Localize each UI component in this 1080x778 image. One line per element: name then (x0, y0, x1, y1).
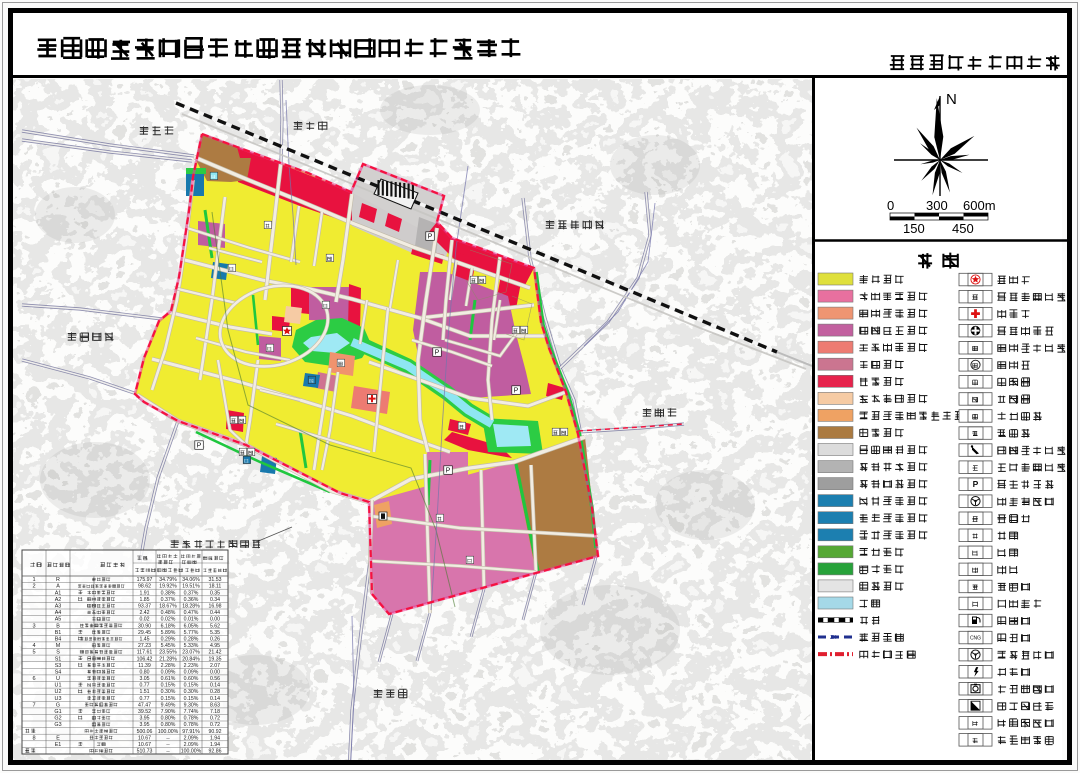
svg-text:18.28%: 18.28% (182, 604, 200, 610)
svg-text:U3: U3 (55, 696, 62, 702)
svg-text:0.15%: 0.15% (184, 696, 199, 702)
svg-text:P: P (514, 388, 519, 395)
svg-text:23.07%: 23.07% (182, 650, 200, 656)
svg-text:18.67%: 18.67% (159, 604, 177, 610)
svg-text:G2: G2 (54, 716, 61, 722)
svg-text:6.18%: 6.18% (161, 623, 176, 629)
svg-text:21.42: 21.42 (209, 650, 222, 656)
svg-text:5: 5 (32, 650, 35, 656)
svg-text:6: 6 (32, 676, 35, 682)
svg-text:B4: B4 (55, 637, 62, 643)
svg-text:0.78%: 0.78% (184, 716, 199, 722)
svg-text:97.91%: 97.91% (182, 729, 200, 735)
svg-text:106.42: 106.42 (137, 656, 153, 662)
svg-text:18.11: 18.11 (209, 584, 222, 590)
svg-text:10.67: 10.67 (138, 735, 151, 741)
svg-text:10.67: 10.67 (138, 742, 151, 748)
svg-text:0.80: 0.80 (139, 669, 149, 675)
svg-text:E: E (56, 735, 60, 741)
svg-text:90.92: 90.92 (209, 729, 222, 735)
svg-text:CNG: CNG (970, 636, 981, 642)
svg-text:0.26: 0.26 (210, 637, 220, 643)
svg-text:1.91: 1.91 (139, 590, 149, 596)
svg-text:0.37%: 0.37% (184, 590, 199, 596)
svg-text:0.44: 0.44 (210, 610, 220, 616)
svg-text:2.07: 2.07 (210, 663, 220, 669)
svg-text:0.34: 0.34 (210, 597, 220, 603)
svg-text:A: A (56, 584, 60, 590)
svg-text:23.55%: 23.55% (159, 650, 177, 656)
svg-text:0.09%: 0.09% (184, 669, 199, 675)
svg-text:5.62: 5.62 (210, 623, 220, 629)
svg-text:4.95: 4.95 (210, 643, 220, 649)
svg-text:0.61%: 0.61% (161, 676, 176, 682)
svg-text:2.42: 2.42 (139, 610, 149, 616)
svg-text:0.47%: 0.47% (184, 610, 199, 616)
svg-text:P: P (446, 468, 451, 475)
svg-text:300: 300 (926, 198, 948, 213)
svg-text:100.00%: 100.00% (158, 729, 179, 735)
svg-text:5.77%: 5.77% (184, 630, 199, 636)
svg-text:3.95: 3.95 (139, 722, 149, 728)
svg-text:29.45: 29.45 (138, 630, 151, 636)
svg-text:7: 7 (32, 702, 35, 708)
svg-text:9.49%: 9.49% (161, 702, 176, 708)
svg-text:A2: A2 (55, 597, 62, 603)
svg-text:9.30%: 9.30% (184, 702, 199, 708)
svg-text:0.80%: 0.80% (161, 716, 176, 722)
svg-text:P: P (428, 234, 433, 241)
svg-text:P: P (197, 443, 202, 450)
svg-text:11.39: 11.39 (138, 663, 151, 669)
svg-text:600m: 600m (963, 198, 996, 213)
svg-text:47.47: 47.47 (138, 702, 151, 708)
svg-text:92.86: 92.86 (209, 749, 222, 755)
svg-text:0.37%: 0.37% (161, 597, 176, 603)
svg-text:G1: G1 (54, 709, 61, 715)
svg-text:0.72: 0.72 (210, 722, 220, 728)
svg-text:93.37: 93.37 (138, 604, 151, 610)
svg-text:0: 0 (887, 198, 894, 213)
svg-text:P: P (435, 350, 440, 357)
svg-text:A3: A3 (55, 604, 62, 610)
svg-text:31.53: 31.53 (209, 577, 222, 583)
svg-text:0.01%: 0.01% (184, 617, 199, 623)
svg-text:20.84%: 20.84% (182, 656, 200, 662)
svg-text:5.89%: 5.89% (161, 630, 176, 636)
svg-text:0.15%: 0.15% (161, 696, 176, 702)
svg-text:0.14: 0.14 (210, 683, 220, 689)
svg-text:1.94: 1.94 (210, 735, 220, 741)
svg-text:M: M (56, 643, 61, 649)
svg-text:2.23%: 2.23% (184, 663, 199, 669)
svg-text:0.00: 0.00 (210, 617, 220, 623)
svg-text:A1: A1 (55, 590, 62, 596)
svg-text:N: N (946, 91, 957, 108)
svg-text:98.62: 98.62 (138, 584, 151, 590)
svg-text:E1: E1 (55, 742, 62, 748)
svg-text:19.35: 19.35 (209, 656, 222, 662)
svg-text:0.56: 0.56 (210, 676, 220, 682)
svg-text:30.90: 30.90 (138, 623, 151, 629)
svg-text:8.63: 8.63 (210, 702, 220, 708)
svg-text:G: G (56, 702, 60, 708)
svg-text:0.28%: 0.28% (184, 637, 199, 643)
svg-text:A5: A5 (55, 617, 62, 623)
svg-text:S4: S4 (55, 669, 62, 675)
svg-text:27.23: 27.23 (138, 643, 151, 649)
svg-text:150: 150 (903, 221, 925, 236)
svg-text:S3: S3 (55, 663, 62, 669)
svg-text:0.29%: 0.29% (161, 637, 176, 643)
svg-text:ZX: ZX (830, 635, 837, 641)
svg-text:3: 3 (32, 623, 35, 629)
svg-text:G3: G3 (54, 722, 61, 728)
svg-text:3.95: 3.95 (139, 716, 149, 722)
svg-text:0.80%: 0.80% (161, 722, 176, 728)
svg-text:R: R (56, 577, 60, 583)
svg-text:7.74%: 7.74% (184, 709, 199, 715)
svg-text:0.15%: 0.15% (161, 683, 176, 689)
svg-text:B1: B1 (55, 630, 62, 636)
svg-text:--: -- (166, 735, 170, 741)
svg-text:--: -- (166, 742, 170, 748)
svg-text:0.48%: 0.48% (161, 610, 176, 616)
svg-text:7.90%: 7.90% (161, 709, 176, 715)
svg-text:0.60%: 0.60% (184, 676, 199, 682)
svg-text:U2: U2 (55, 689, 62, 695)
svg-text:5.35: 5.35 (210, 630, 220, 636)
svg-text:7.18: 7.18 (210, 709, 220, 715)
svg-text:P: P (973, 479, 979, 489)
svg-text:0.15%: 0.15% (184, 683, 199, 689)
svg-text:6.05%: 6.05% (184, 623, 199, 629)
svg-text:175.97: 175.97 (137, 577, 153, 583)
svg-text:0.14: 0.14 (210, 696, 220, 702)
svg-text:0.78%: 0.78% (184, 722, 199, 728)
svg-text:2.28%: 2.28% (161, 663, 176, 669)
svg-text:1.94: 1.94 (210, 742, 220, 748)
svg-text:0.09%: 0.09% (161, 669, 176, 675)
svg-text:5.33%: 5.33% (184, 643, 199, 649)
svg-text:34.06%: 34.06% (182, 577, 200, 583)
svg-text:0.35: 0.35 (210, 590, 220, 596)
svg-text:0.30%: 0.30% (161, 689, 176, 695)
svg-text:0.77: 0.77 (139, 696, 149, 702)
svg-text:0.00: 0.00 (210, 669, 220, 675)
svg-text:0.36%: 0.36% (184, 597, 199, 603)
svg-text:0.02: 0.02 (139, 617, 149, 623)
svg-text:4: 4 (32, 643, 35, 649)
svg-text:U1: U1 (55, 683, 62, 689)
svg-text:1.51: 1.51 (139, 689, 149, 695)
svg-text:0.72: 0.72 (210, 716, 220, 722)
svg-text:2: 2 (32, 584, 35, 590)
svg-text:8: 8 (32, 735, 35, 741)
svg-text:2.09%: 2.09% (184, 742, 199, 748)
svg-text:21.28%: 21.28% (159, 656, 177, 662)
svg-text:S: S (56, 650, 60, 656)
svg-text:5.45%: 5.45% (161, 643, 176, 649)
svg-text:100.00%: 100.00% (181, 749, 202, 755)
svg-text:500.06: 500.06 (137, 729, 153, 735)
svg-text:19.92%: 19.92% (159, 584, 177, 590)
svg-text:3.05: 3.05 (139, 676, 149, 682)
svg-text:450: 450 (952, 221, 974, 236)
svg-text:117.61: 117.61 (137, 650, 153, 656)
svg-text:0.28: 0.28 (210, 689, 220, 695)
svg-text:0.30%: 0.30% (184, 689, 199, 695)
svg-text:1.85: 1.85 (139, 597, 149, 603)
svg-text:0.02%: 0.02% (161, 617, 176, 623)
svg-text:34.79%: 34.79% (159, 577, 177, 583)
svg-text:39.52: 39.52 (138, 709, 151, 715)
svg-text:16.98: 16.98 (209, 604, 222, 610)
svg-text:0.38%: 0.38% (161, 590, 176, 596)
svg-text:--: -- (166, 749, 170, 755)
svg-text:S1: S1 (55, 656, 62, 662)
svg-text:19.51%: 19.51% (182, 584, 200, 590)
svg-text:0.77: 0.77 (139, 683, 149, 689)
svg-text:A4: A4 (55, 610, 62, 616)
svg-text:1.45: 1.45 (139, 637, 149, 643)
svg-text:2.09%: 2.09% (184, 735, 199, 741)
svg-text:1: 1 (32, 577, 35, 583)
svg-text:U: U (56, 676, 60, 682)
svg-text:510.73: 510.73 (137, 749, 153, 755)
svg-text:B: B (56, 623, 60, 629)
